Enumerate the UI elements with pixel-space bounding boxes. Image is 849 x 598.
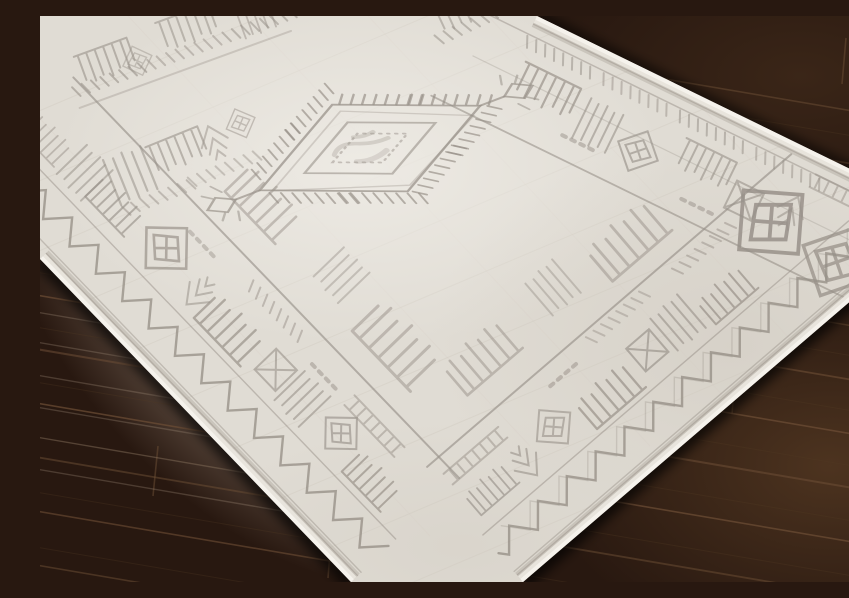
photo-canvas [40, 16, 849, 582]
rug-product-photo: Ivory distressed tribal area rug with fa… [40, 16, 849, 582]
